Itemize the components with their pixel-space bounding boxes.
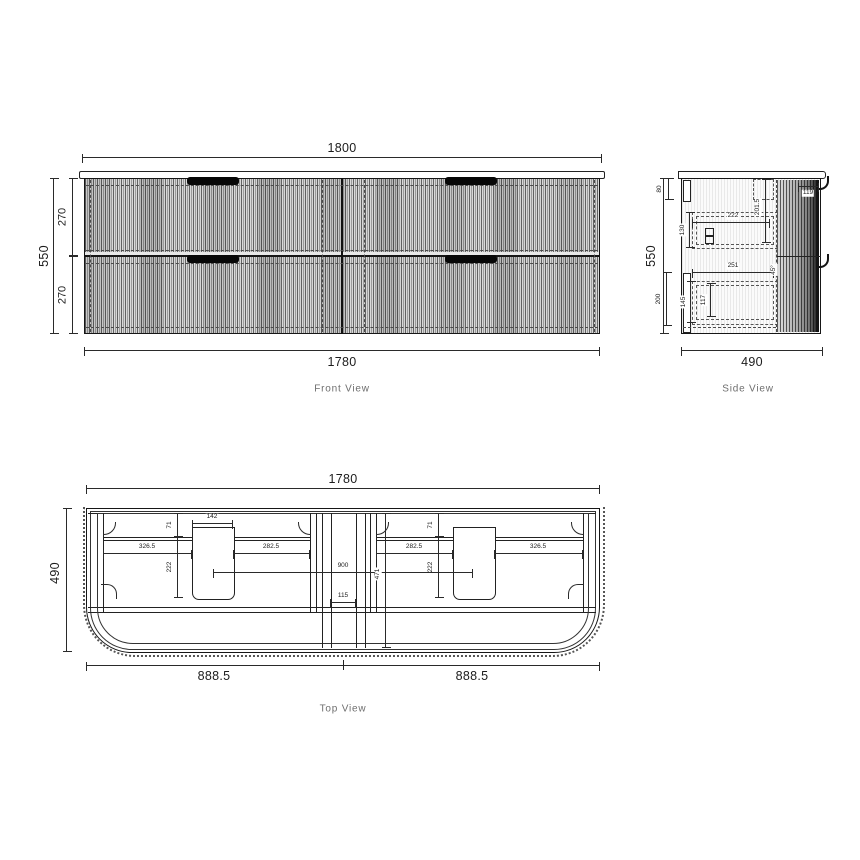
side-lower-rail-dim <box>666 272 667 326</box>
construction-line <box>776 180 777 332</box>
side-lower-inner-height-label: 117 <box>701 294 708 306</box>
top-cutout-centres-label: 900 <box>337 563 350 570</box>
top-shelf-line <box>494 537 583 538</box>
construction-line <box>90 180 91 332</box>
side-depth-dim <box>681 350 823 351</box>
top-width-label: 1780 <box>327 473 358 486</box>
front-pull-bottom-right <box>445 255 497 263</box>
side-front-reveal-label: 119 <box>802 190 814 197</box>
top-left-back-gap-dim <box>177 513 178 537</box>
top-left-outer-span-dim <box>103 553 192 554</box>
top-shelf-line <box>233 540 310 541</box>
front-pull-bottom-left <box>187 255 239 263</box>
side-lower-box-depth-label: 251 <box>727 263 740 270</box>
front-bottom-width-dim <box>84 350 600 351</box>
top-left-inner-span-label: 282.5 <box>262 544 280 551</box>
side-pull-profile-middle <box>817 254 829 268</box>
side-lower-box-height-dim <box>690 281 691 323</box>
top-internal-depth-dim <box>385 513 386 648</box>
front-height-dim <box>53 178 54 334</box>
side-runner-detail <box>705 228 714 236</box>
top-corner-block <box>568 584 584 599</box>
top-inner-front-curve <box>97 513 589 644</box>
top-wall-line <box>370 513 371 612</box>
top-shelf-line <box>103 540 192 541</box>
front-pull-top-right <box>445 177 497 185</box>
top-left-back-gap-label: 71 <box>167 520 174 529</box>
top-wall-line <box>316 513 317 612</box>
top-shelf-line <box>494 540 583 541</box>
top-centre-gap-label: 115 <box>337 593 349 600</box>
side-depth-label: 490 <box>740 356 764 369</box>
top-left-cutout-depth-label: 222 <box>167 561 174 574</box>
side-upper-box-height-dim <box>689 212 690 248</box>
construction-line <box>364 180 365 332</box>
top-depth-dim <box>66 508 67 652</box>
top-internal-depth-label: 471 <box>375 568 382 581</box>
top-right-outer-span-label: 326.5 <box>529 544 547 551</box>
top-right-cutout <box>453 527 496 600</box>
side-upper-box-depth-label: 222 <box>727 213 740 220</box>
side-front-reveal-dim <box>798 186 819 187</box>
side-view-title: Side View <box>722 384 774 395</box>
front-pull-top-left <box>187 177 239 185</box>
top-right-back-gap-label: 71 <box>428 520 435 529</box>
top-right-half-width-label: 888.5 <box>455 670 490 683</box>
top-left-half-width-label: 888.5 <box>197 670 232 683</box>
construction-line <box>683 327 776 328</box>
side-height-dim <box>663 178 664 334</box>
top-left-cutout <box>192 527 235 600</box>
top-left-inner-span-dim <box>233 553 310 554</box>
side-upper-clearance-dim <box>765 179 766 243</box>
construction-line <box>322 180 323 332</box>
side-wall-rail-top <box>683 180 691 202</box>
top-shelf-line <box>376 540 453 541</box>
front-view-title: Front View <box>314 384 370 395</box>
top-right-inner-span-dim <box>376 553 453 554</box>
front-height-label: 550 <box>38 244 51 268</box>
construction-line <box>86 263 598 264</box>
side-lower-inner-height-dim <box>710 283 711 317</box>
top-cutout-width-label: 142 <box>206 514 219 521</box>
side-top-rail-dim <box>668 178 669 200</box>
front-bottom-width-label: 1780 <box>326 356 357 369</box>
top-centre-gap-dim <box>330 602 356 603</box>
side-lower-drawer-inner <box>696 285 774 320</box>
front-centre-divider <box>341 178 343 334</box>
top-centre-column-left <box>322 513 332 648</box>
side-pull-chamfer-label: 45° <box>771 264 778 276</box>
top-shelf-line <box>233 537 310 538</box>
top-width-dim <box>86 488 600 489</box>
front-upper-drawer-label: 270 <box>58 207 69 227</box>
side-lower-rail-label: 200 <box>656 293 663 306</box>
top-half-width-centre-tick <box>343 660 344 670</box>
side-height-label: 550 <box>645 244 658 268</box>
top-centre-column-right <box>356 513 366 648</box>
front-lower-drawer-label: 270 <box>58 285 69 305</box>
top-left-outer-span-label: 326.5 <box>138 544 156 551</box>
side-drawer-split-line <box>777 256 821 257</box>
top-view-title: Top View <box>320 704 367 715</box>
top-left-cutout-depth-dim <box>177 537 178 598</box>
top-right-inner-span-label: 282.5 <box>405 544 423 551</box>
top-right-outer-span-dim <box>494 553 583 554</box>
side-top-corner-detail <box>753 179 774 200</box>
side-runner-detail <box>705 236 714 244</box>
top-cutout-width-dim <box>192 523 233 524</box>
side-lower-box-height-label: 145 <box>681 296 688 309</box>
top-depth-label: 490 <box>49 561 62 585</box>
construction-line <box>86 327 598 328</box>
top-cutout-centres-dim <box>213 572 473 573</box>
top-right-back-gap-dim <box>438 513 439 537</box>
top-right-cutout-depth-dim <box>438 537 439 598</box>
technical-drawing-canvas: 1800 550 270 270 1780 Fron <box>0 0 860 860</box>
front-lower-drawer-dim <box>72 256 73 334</box>
front-top-width-dim <box>82 157 602 158</box>
side-upper-clearance-label: 201.5 <box>755 198 762 216</box>
front-top-width-label: 1800 <box>326 142 357 155</box>
side-upper-box-depth-dim <box>692 222 770 223</box>
construction-line <box>594 180 595 332</box>
side-lower-box-depth-dim <box>692 272 774 273</box>
construction-line <box>86 250 598 251</box>
front-upper-drawer-dim <box>72 178 73 256</box>
construction-line <box>86 185 598 186</box>
side-upper-box-height-label: 130 <box>680 224 687 237</box>
